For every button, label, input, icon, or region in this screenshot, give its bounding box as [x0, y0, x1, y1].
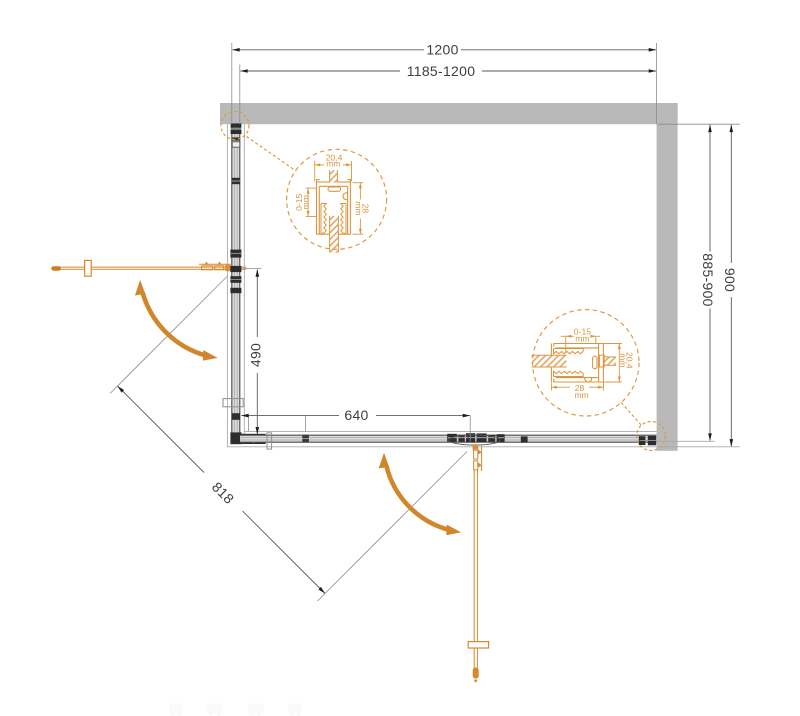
svg-text:900: 900 [722, 268, 738, 292]
svg-text:640: 640 [344, 407, 368, 423]
svg-text:mm: mm [326, 159, 340, 169]
svg-text:mm: mm [300, 195, 310, 209]
svg-text:mm: mm [618, 353, 628, 367]
svg-text:mm: mm [575, 333, 589, 343]
svg-text:1200: 1200 [426, 42, 458, 58]
svg-text:885-900: 885-900 [700, 253, 716, 306]
svg-text:mm: mm [354, 201, 364, 215]
svg-text:mm: mm [574, 390, 588, 400]
svg-text:490: 490 [248, 343, 264, 367]
svg-text:1185-1200: 1185-1200 [407, 63, 476, 79]
